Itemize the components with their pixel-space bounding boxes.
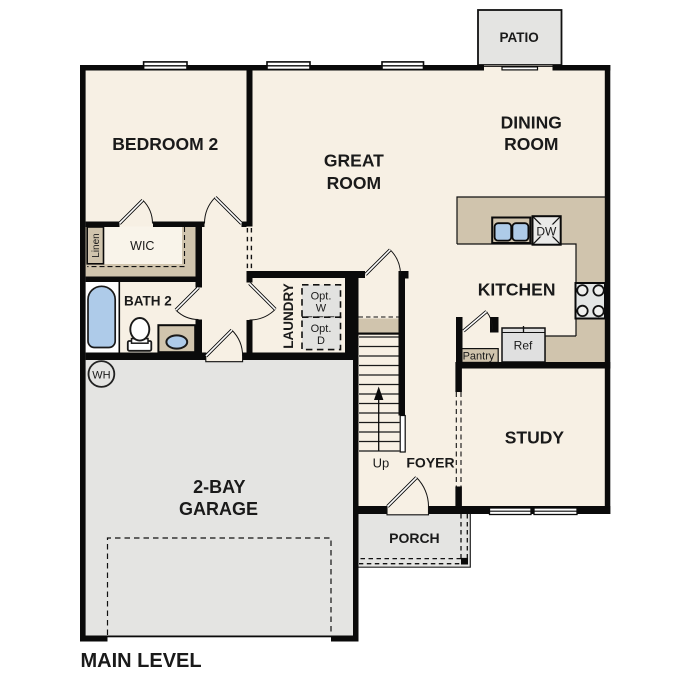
svg-text:2-BAY: 2-BAY	[193, 477, 245, 497]
svg-text:D: D	[317, 335, 325, 347]
svg-text:LAUNDRY: LAUNDRY	[281, 283, 296, 349]
svg-text:STUDY: STUDY	[505, 428, 565, 448]
svg-text:BATH 2: BATH 2	[124, 294, 172, 309]
svg-text:KITCHEN: KITCHEN	[478, 280, 556, 300]
svg-text:W: W	[316, 303, 327, 315]
svg-text:Linen: Linen	[91, 233, 102, 257]
svg-text:DW: DW	[536, 225, 557, 239]
svg-text:WIC: WIC	[130, 239, 154, 253]
svg-text:PORCH: PORCH	[389, 530, 440, 546]
svg-text:Ref: Ref	[514, 339, 533, 353]
svg-text:GREAT: GREAT	[324, 151, 384, 171]
svg-text:DINING: DINING	[501, 112, 562, 132]
svg-text:Opt.: Opt.	[311, 323, 332, 335]
svg-text:Opt.: Opt.	[311, 291, 332, 303]
svg-text:ROOM: ROOM	[327, 173, 381, 193]
svg-text:GARAGE: GARAGE	[179, 499, 258, 519]
svg-text:MAIN LEVEL: MAIN LEVEL	[81, 650, 202, 672]
svg-text:ROOM: ROOM	[504, 134, 558, 154]
svg-text:BEDROOM 2: BEDROOM 2	[112, 134, 218, 154]
svg-text:Up: Up	[373, 456, 390, 471]
svg-text:PATIO: PATIO	[499, 30, 538, 45]
svg-text:Pantry: Pantry	[463, 350, 495, 362]
svg-text:FOYER: FOYER	[406, 454, 454, 470]
svg-text:WH: WH	[92, 369, 110, 381]
